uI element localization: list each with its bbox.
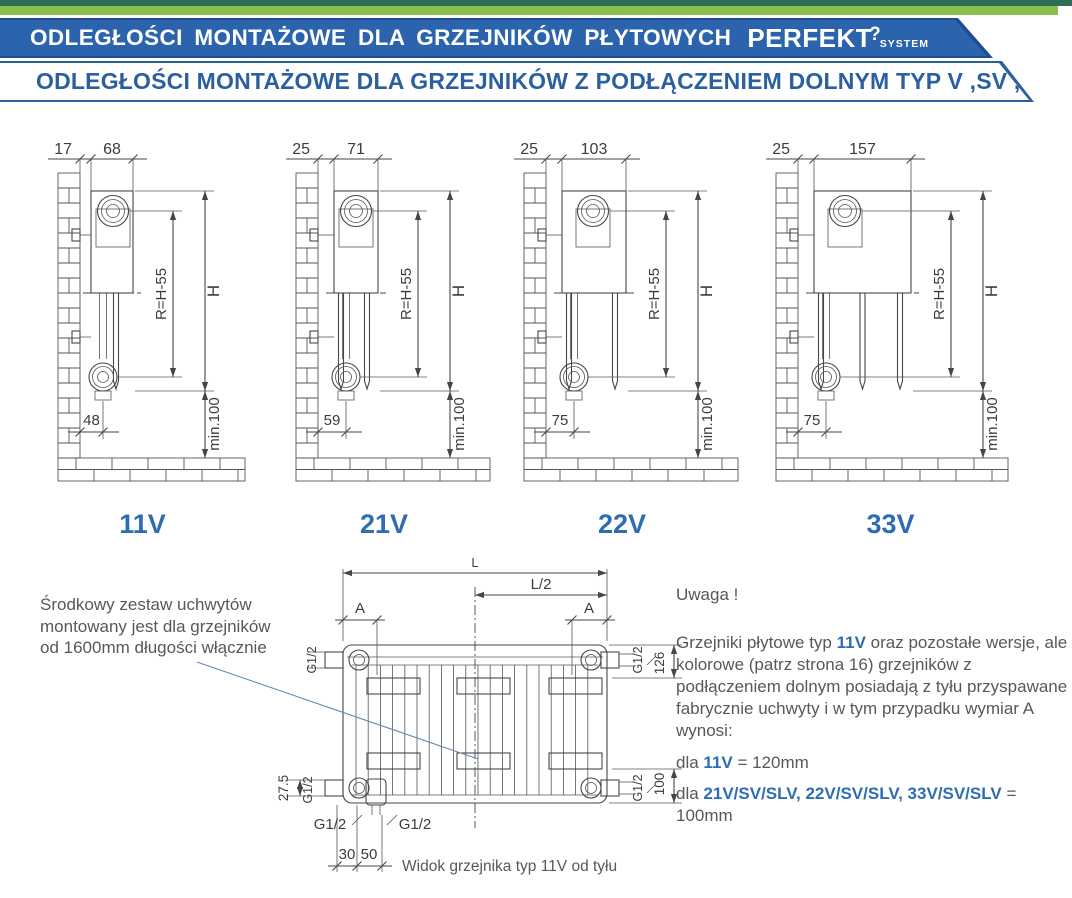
sub-banner: ODLEGŁOŚCI MONTAŻOWE DLA GRZEJNIKÓW Z PO… [0,61,1072,102]
main-banner: ODLEGŁOŚCI MONTAŻOWE DLA GRZEJNIKÓW PŁYT… [0,18,1072,58]
logo-sub-text: SYSTEM [880,38,929,50]
warning-title: Uwaga ! [676,584,1072,606]
dim-label: 25 [292,141,310,158]
dim-label: 100 [652,773,667,796]
logo-brand-text: PERFEKT [747,23,872,54]
dim-label: A [355,600,365,617]
dim-label: R=H-55 [398,268,415,320]
type-label-21V: 21V [360,509,408,539]
dim-label: min.100 [984,397,1001,450]
radiator-rear-view-svg: LL/2AAG1/2G1/2126G1/2100G1/227.53050G1/2… [262,553,694,898]
dim-label: 50 [361,846,378,863]
dim-label: G1/2 [305,646,319,673]
dim-label: R=H-55 [153,268,170,320]
type-label-22V: 22V [598,509,646,539]
page: ODLEGŁOŚCI MONTAŻOWE DLA GRZEJNIKÓW PŁYT… [0,0,1072,898]
dim-label: 68 [103,141,121,158]
dim-label: 157 [849,141,876,158]
dim-label: 75 [804,412,821,429]
dim-label: L [471,555,478,570]
dim-label: 25 [520,141,538,158]
rule-types: 21V/SV/SLV, 22V/SV/SLV, 33V/SV/SLV [703,784,1001,803]
dim-label: 75 [552,412,569,429]
logo-hook-icon: ? [869,24,881,46]
diagram-22v: 25103Hmin.100R=H-557522V [484,133,764,545]
diagram-rear-view: LL/2AAG1/2G1/2126G1/2100G1/227.53050G1/2… [262,553,694,898]
dim-label: min.100 [451,397,468,450]
dim-label: G1/2 [631,646,645,673]
dim-label: H [697,285,716,297]
paragraph-text: Grzejniki płytowe typ [676,633,837,652]
dimension-rule-other: dla 21V/SV/SLV, 22V/SV/SLV, 33V/SV/SLV =… [676,783,1072,827]
sub-banner-inner: ODLEGŁOŚCI MONTAŻOWE DLA GRZEJNIKÓW Z PO… [0,63,1069,100]
warning-paragraph: Grzejniki płytowe typ 11V oraz pozostałe… [676,632,1072,742]
rule-value: = 120mm [733,753,809,772]
radiator-side-view-22V: 25103Hmin.100R=H-557522V [484,133,764,545]
dimension-rule-11v: dla 11V = 120mm [676,752,1072,774]
dim-label: 103 [581,141,608,158]
page-title: ODLEGŁOŚCI MONTAŻOWE DLA GRZEJNIKÓW PŁYT… [30,25,731,51]
dim-label: R=H-55 [931,268,948,320]
dim-label: 59 [324,412,341,429]
diagram-33v: 25157Hmin.100R=H-557533V [736,133,1016,545]
dim-label: 48 [83,412,100,429]
dim-label: G1/2 [314,816,347,833]
rule-types: 11V [703,753,732,772]
perfekt-logo: PERFEKT ? SYSTEM [747,23,929,54]
dim-label: 25 [772,141,790,158]
dim-label: H [982,285,1001,297]
dim-label: 17 [54,141,72,158]
dim-label: G1/2 [399,816,432,833]
dim-label: min.100 [699,397,716,450]
rule-prefix: dla [676,784,703,803]
dim-label: min.100 [206,397,223,450]
rule-prefix: dla [676,753,703,772]
dim-label: L/2 [531,576,552,593]
main-banner-inner: ODLEGŁOŚCI MONTAŻOWE DLA GRZEJNIKÓW PŁYT… [0,20,1072,56]
dim-label: 126 [652,652,667,675]
dim-label: G1/2 [631,774,645,801]
page-subtitle: ODLEGŁOŚCI MONTAŻOWE DLA GRZEJNIKÓW Z PO… [36,68,1064,95]
top-green-strip [0,6,1058,15]
dim-label: 71 [347,141,365,158]
dim-label: A [584,600,594,617]
warning-note: Uwaga ! Grzejniki płytowe typ 11V oraz p… [676,584,1072,836]
rear-view-caption: Widok grzejnika typ 11V od tyłu [402,858,617,875]
type-highlight: 11V [837,633,866,652]
dim-label: R=H-55 [646,268,663,320]
dim-label: 30 [339,846,356,863]
dim-label: G1/2 [301,776,315,803]
radiator-side-view-33V: 25157Hmin.100R=H-557533V [736,133,1016,545]
type-label-11V: 11V [119,509,166,539]
dim-label: 27.5 [276,775,291,801]
type-label-33V: 33V [866,509,914,539]
dim-label: H [204,285,223,297]
dim-label: H [449,285,468,297]
